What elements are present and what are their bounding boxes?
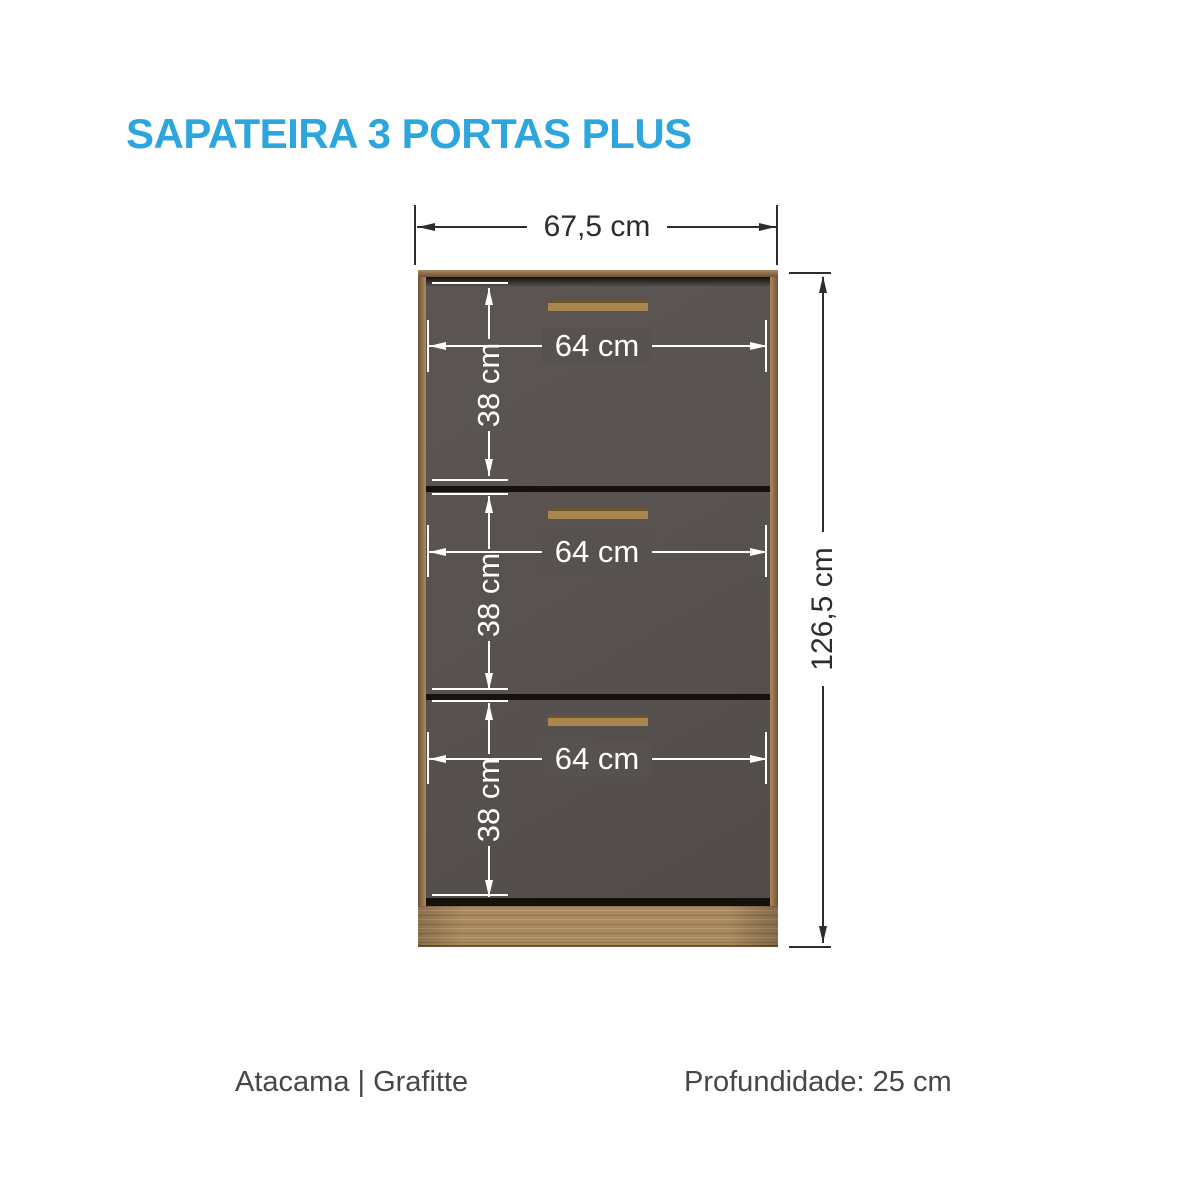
cabinet-right-edge — [770, 277, 778, 906]
cabinet-front-view: 64 cm 38 cm 64 cm 38 cm — [418, 270, 778, 945]
extension-line — [789, 946, 831, 948]
door-handle — [548, 508, 648, 519]
arrow-left-icon — [429, 342, 446, 350]
arrow-left-icon — [429, 548, 446, 556]
page-title: SAPATEIRA 3 PORTAS PLUS — [126, 110, 692, 158]
dimension-line — [822, 686, 824, 943]
door-width-label: 64 cm — [542, 741, 652, 777]
overall-width-label: 67,5 cm — [527, 209, 667, 245]
door-height-label: 38 cm — [471, 745, 507, 855]
overall-height-label: 126,5 cm — [805, 529, 841, 689]
extension-line — [414, 205, 416, 265]
arrow-up-icon — [485, 496, 493, 513]
cabinet-base — [418, 906, 778, 947]
arrow-up-icon — [485, 703, 493, 720]
cabinet-top-edge — [418, 270, 778, 277]
extension-line — [432, 894, 508, 896]
depth-label: Profundidade: 25 cm — [684, 1066, 952, 1099]
product-dimension-diagram: SAPATEIRA 3 PORTAS PLUS 67,5 cm 126,5 cm — [0, 0, 1200, 1200]
door-handle — [548, 300, 648, 311]
dimension-line — [822, 277, 824, 532]
door-bottom-shadow — [426, 898, 770, 906]
arrow-down-icon — [485, 880, 493, 897]
extension-line — [432, 479, 508, 481]
arrow-right-icon — [750, 342, 767, 350]
extension-line — [432, 700, 508, 702]
door-width-label: 64 cm — [542, 534, 652, 570]
extension-line — [432, 282, 508, 284]
arrow-up-icon — [485, 288, 493, 305]
arrow-right-icon — [750, 755, 767, 763]
finish-label: Atacama | Grafitte — [235, 1066, 468, 1099]
extension-line — [776, 205, 778, 265]
door-handle — [548, 715, 648, 726]
arrow-down-icon — [819, 926, 827, 943]
arrow-right-icon — [759, 223, 776, 231]
arrow-left-icon — [429, 755, 446, 763]
extension-line — [789, 272, 831, 274]
arrow-left-icon — [418, 223, 435, 231]
arrow-down-icon — [485, 673, 493, 690]
door-gap — [426, 486, 770, 492]
door-height-label: 38 cm — [471, 330, 507, 440]
door-height-label: 38 cm — [471, 540, 507, 650]
arrow-up-icon — [819, 276, 827, 293]
cabinet-left-edge — [418, 277, 426, 906]
arrow-right-icon — [750, 548, 767, 556]
door-width-label: 64 cm — [542, 328, 652, 364]
extension-line — [432, 493, 508, 495]
extension-line — [432, 688, 508, 690]
arrow-down-icon — [485, 459, 493, 476]
